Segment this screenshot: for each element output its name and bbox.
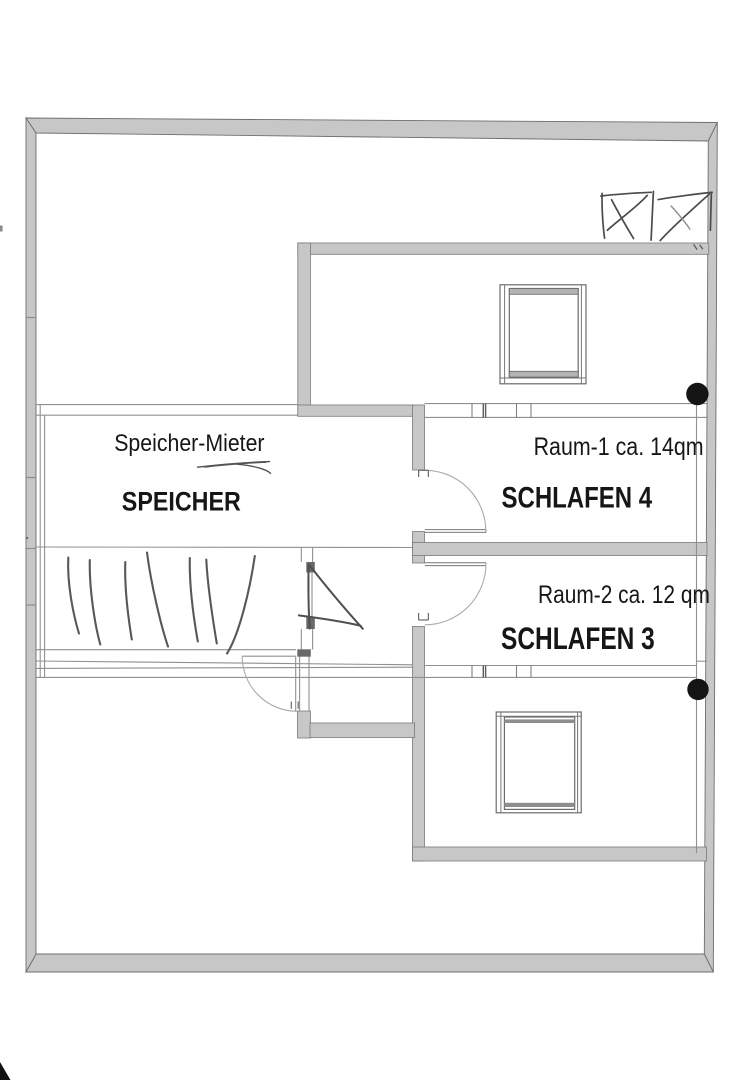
svg-text:Raum-1 ca. 14qm: Raum-1 ca. 14qm — [534, 433, 704, 461]
svg-text:Speicher-Mieter: Speicher-Mieter — [114, 430, 265, 456]
svg-text:SCHLAFEN 3: SCHLAFEN 3 — [501, 621, 655, 655]
svg-text:SPEICHER: SPEICHER — [122, 487, 241, 517]
svg-text:SCHLAFEN 4: SCHLAFEN 4 — [502, 480, 653, 514]
svg-text:Raum-2 ca. 12 qm: Raum-2 ca. 12 qm — [538, 580, 710, 608]
